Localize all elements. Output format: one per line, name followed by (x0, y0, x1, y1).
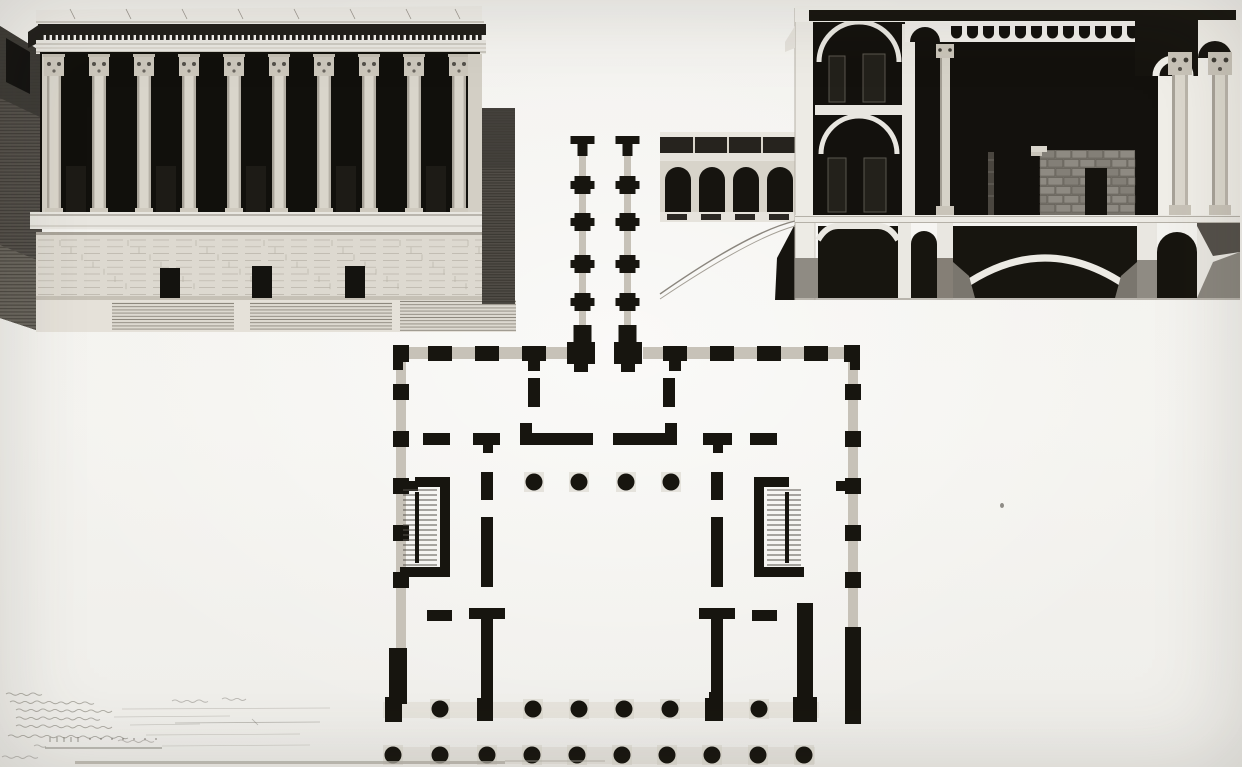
photo-edge-shadow (75, 761, 505, 764)
interior-partitions (427, 472, 777, 698)
photo-edge-shadow-2 (505, 760, 605, 762)
plan-wall-infill (383, 142, 860, 764)
side-wall-perspective (0, 26, 42, 332)
entablature (28, 6, 486, 54)
photo-speck (1000, 503, 1004, 508)
cornice-band (38, 24, 486, 35)
floor-plan-drawing (365, 120, 865, 767)
scale-bar (45, 719, 320, 748)
plan-panel (365, 120, 865, 767)
entrance-hall-walls (423, 378, 777, 453)
courtyard-columns (524, 472, 681, 492)
handwritten-legend (0, 685, 430, 767)
drawing-plate (0, 0, 1242, 767)
handwriting-lines (2, 693, 330, 759)
stair-blocks (400, 477, 804, 577)
masonry-doorway (1085, 168, 1107, 215)
legend-panel (0, 685, 430, 767)
